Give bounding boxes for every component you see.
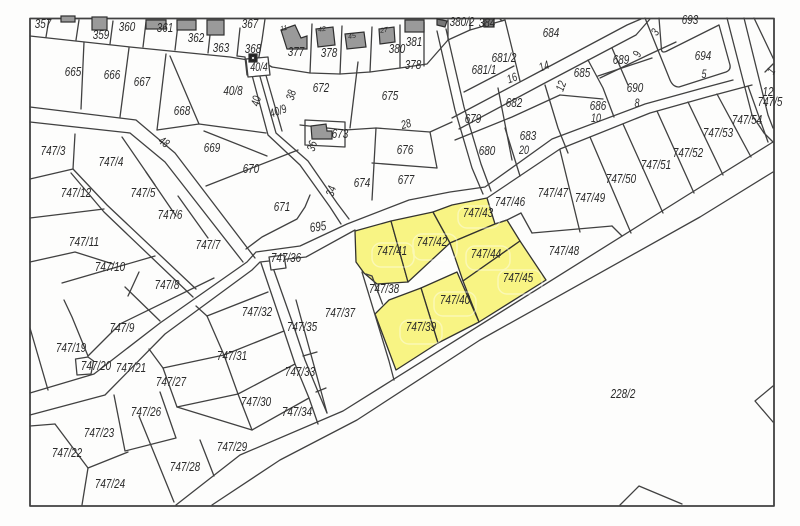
svg-text:747/44: 747/44: [471, 246, 501, 261]
svg-text:40/4: 40/4: [250, 60, 268, 74]
svg-text:694: 694: [695, 48, 712, 63]
svg-text:747/48: 747/48: [549, 243, 580, 258]
svg-text:381: 381: [406, 34, 423, 49]
svg-text:38: 38: [283, 88, 299, 102]
svg-text:670: 670: [243, 161, 260, 176]
svg-text:747/4: 747/4: [99, 154, 124, 169]
svg-text:9: 9: [630, 49, 645, 60]
svg-text:667: 667: [134, 74, 151, 89]
svg-text:675: 675: [382, 88, 399, 103]
svg-text:747/19: 747/19: [56, 340, 87, 355]
svg-text:42: 42: [318, 26, 327, 34]
svg-text:362: 362: [188, 30, 205, 45]
svg-text:747/28: 747/28: [170, 459, 201, 474]
svg-text:690: 690: [627, 80, 644, 95]
svg-text:689: 689: [613, 52, 630, 67]
svg-text:747/29: 747/29: [217, 439, 248, 454]
svg-text:677: 677: [398, 172, 415, 187]
svg-text:747/36: 747/36: [271, 250, 302, 265]
svg-text:747/40: 747/40: [440, 292, 471, 307]
svg-text:747/5: 747/5: [758, 94, 783, 109]
svg-text:378: 378: [321, 45, 338, 60]
svg-text:1: 1: [764, 65, 779, 76]
svg-text:747/47: 747/47: [538, 185, 569, 200]
svg-text:747/10: 747/10: [95, 259, 126, 274]
svg-text:747/22: 747/22: [52, 445, 83, 460]
svg-text:747/33: 747/33: [285, 364, 316, 379]
svg-text:693: 693: [682, 12, 699, 27]
svg-text:747/32: 747/32: [242, 304, 273, 319]
svg-text:747/6: 747/6: [158, 207, 183, 222]
svg-text:12: 12: [553, 79, 570, 93]
svg-text:10: 10: [591, 111, 601, 125]
svg-text:747/50: 747/50: [606, 171, 637, 186]
svg-text:669: 669: [204, 140, 221, 155]
svg-text:380/2: 380/2: [450, 14, 475, 29]
svg-text:747/52: 747/52: [673, 145, 704, 160]
svg-text:747/34: 747/34: [282, 404, 312, 419]
svg-text:681/1: 681/1: [472, 62, 497, 77]
svg-text:685: 685: [574, 65, 591, 80]
svg-text:679: 679: [465, 111, 482, 126]
svg-text:747/43: 747/43: [463, 205, 494, 220]
svg-text:40/8: 40/8: [223, 83, 243, 98]
svg-text:747/20: 747/20: [81, 358, 112, 373]
svg-text:747/39: 747/39: [406, 319, 437, 334]
svg-text:378: 378: [405, 57, 422, 72]
svg-text:747/8: 747/8: [155, 277, 180, 292]
svg-text:747/5: 747/5: [131, 185, 156, 200]
svg-text:747/51: 747/51: [641, 157, 671, 172]
svg-text:367: 367: [242, 16, 259, 31]
svg-text:665: 665: [65, 64, 82, 79]
svg-text:747/53: 747/53: [703, 125, 734, 140]
svg-text:747/7: 747/7: [196, 237, 221, 252]
svg-text:680: 680: [479, 143, 496, 158]
svg-text:45: 45: [348, 33, 357, 41]
svg-text:747/45: 747/45: [503, 270, 534, 285]
svg-text:747/38: 747/38: [369, 281, 400, 296]
svg-text:747/21: 747/21: [116, 360, 146, 375]
svg-text:747/35: 747/35: [287, 319, 318, 334]
svg-text:666: 666: [104, 67, 121, 82]
svg-text:747/26: 747/26: [131, 404, 162, 419]
svg-text:40/9: 40/9: [267, 101, 288, 120]
svg-text:747/9: 747/9: [110, 320, 135, 335]
svg-text:36: 36: [304, 139, 320, 153]
svg-text:228/2: 228/2: [610, 386, 636, 401]
svg-text:380: 380: [389, 41, 406, 56]
svg-text:377: 377: [288, 44, 305, 59]
svg-text:747/23: 747/23: [84, 425, 115, 440]
svg-text:747/3: 747/3: [41, 143, 66, 158]
svg-text:747/31: 747/31: [217, 348, 247, 363]
svg-text:671: 671: [274, 199, 291, 214]
svg-text:40: 40: [248, 94, 264, 108]
svg-text:747/46: 747/46: [495, 194, 526, 209]
svg-text:747/30: 747/30: [241, 394, 272, 409]
svg-text:668: 668: [174, 103, 191, 118]
svg-text:5: 5: [702, 67, 707, 81]
svg-text:747/12: 747/12: [61, 185, 92, 200]
svg-text:747/37: 747/37: [325, 305, 356, 320]
svg-text:747/24: 747/24: [95, 476, 125, 491]
svg-text:361: 361: [157, 20, 174, 35]
svg-text:747/49: 747/49: [575, 190, 606, 205]
svg-text:363: 363: [213, 40, 230, 55]
svg-text:672: 672: [313, 80, 330, 95]
svg-text:747/11: 747/11: [69, 234, 99, 249]
svg-text:8: 8: [635, 96, 640, 110]
svg-text:682: 682: [506, 95, 523, 110]
svg-text:747/27: 747/27: [156, 374, 187, 389]
svg-text:360: 360: [119, 19, 136, 34]
svg-text:684: 684: [543, 25, 560, 40]
svg-text:20: 20: [518, 143, 529, 157]
svg-text:747/41: 747/41: [377, 243, 407, 258]
svg-text:747/42: 747/42: [417, 234, 448, 249]
svg-text:673: 673: [332, 126, 349, 141]
svg-text:683: 683: [520, 128, 537, 143]
svg-text:11: 11: [280, 25, 288, 33]
svg-text:359: 359: [93, 27, 110, 42]
svg-text:747/54: 747/54: [732, 112, 762, 127]
svg-text:676: 676: [397, 142, 414, 157]
svg-text:368: 368: [245, 41, 262, 56]
svg-text:384: 384: [479, 15, 496, 30]
svg-text:34: 34: [323, 184, 339, 198]
svg-text:357: 357: [35, 16, 52, 31]
svg-text:695: 695: [309, 218, 328, 235]
svg-text:674: 674: [354, 175, 371, 190]
